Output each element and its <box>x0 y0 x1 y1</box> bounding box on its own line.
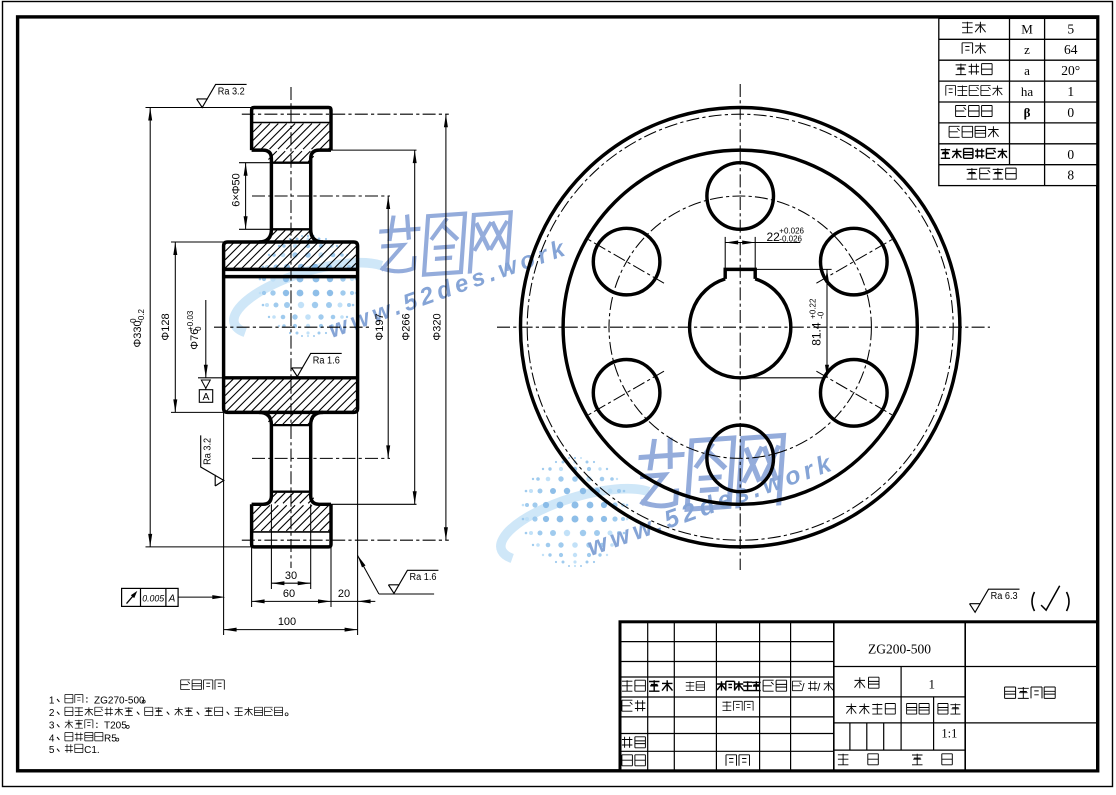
svg-text:1: 1 <box>49 695 55 706</box>
svg-text:Ra 6.3: Ra 6.3 <box>991 591 1018 602</box>
svg-text:1: 1 <box>1067 84 1074 99</box>
svg-text:Ra 1.6: Ra 1.6 <box>410 572 437 583</box>
svg-text:5: 5 <box>49 745 55 756</box>
svg-text:β: β <box>1024 105 1031 120</box>
svg-text:0: 0 <box>194 326 203 331</box>
svg-text:1:1: 1:1 <box>941 727 957 741</box>
svg-text:60: 60 <box>283 588 295 600</box>
svg-text:Φ197: Φ197 <box>374 313 386 340</box>
svg-text:-0.026: -0.026 <box>779 234 802 243</box>
svg-text:0: 0 <box>1067 147 1074 162</box>
svg-text:4: 4 <box>49 733 55 744</box>
svg-text:81.4: 81.4 <box>810 322 824 346</box>
svg-text:A: A <box>202 391 209 403</box>
svg-text:6×Φ50: 6×Φ50 <box>231 173 243 207</box>
svg-text:Φ128: Φ128 <box>160 313 172 340</box>
svg-text:C1.: C1. <box>84 745 100 756</box>
svg-text:Φ266: Φ266 <box>400 313 412 340</box>
svg-text:0: 0 <box>1067 105 1074 120</box>
svg-text:2: 2 <box>49 708 55 719</box>
svg-text:ha: ha <box>1021 84 1034 99</box>
svg-text:M: M <box>1021 21 1033 36</box>
svg-text:Ra 3.2: Ra 3.2 <box>203 438 214 465</box>
svg-text:Ra 3.2: Ra 3.2 <box>218 86 245 97</box>
svg-text:T205: T205 <box>104 721 127 732</box>
svg-text:3: 3 <box>49 721 55 732</box>
svg-text:Ra 1.6: Ra 1.6 <box>313 355 340 366</box>
svg-text:ZG200-500: ZG200-500 <box>868 642 931 657</box>
svg-text:0.005: 0.005 <box>142 594 165 605</box>
svg-text:Φ330: Φ330 <box>132 320 144 347</box>
svg-text:20°: 20° <box>1061 63 1080 78</box>
svg-text:22: 22 <box>767 230 781 244</box>
svg-text:1: 1 <box>928 677 935 692</box>
svg-text:z: z <box>1024 42 1030 57</box>
svg-text:5: 5 <box>1067 21 1074 36</box>
svg-text:Φ320: Φ320 <box>432 313 444 340</box>
svg-text:30: 30 <box>285 570 297 582</box>
svg-text:a: a <box>1024 63 1030 78</box>
svg-text:R5: R5 <box>104 733 117 744</box>
svg-text:ZG270-500: ZG270-500 <box>94 695 145 706</box>
svg-text:64: 64 <box>1064 42 1078 57</box>
svg-text:-0.2: -0.2 <box>137 308 146 322</box>
svg-text:A: A <box>168 594 176 605</box>
svg-text:20: 20 <box>338 588 350 600</box>
svg-text:8: 8 <box>1067 168 1074 183</box>
svg-text:100: 100 <box>278 616 296 628</box>
svg-text:-0: -0 <box>817 311 826 319</box>
